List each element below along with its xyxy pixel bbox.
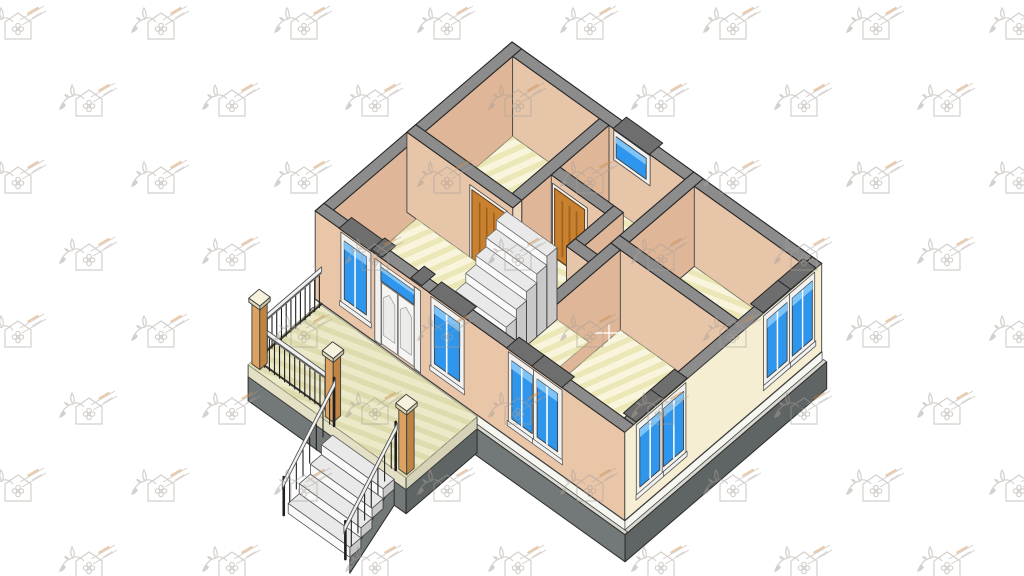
- watermark-leaf-icon: [64, 94, 69, 98]
- watermark-leaf-icon: [631, 103, 638, 110]
- watermark-leaf-icon: [846, 334, 853, 341]
- watermark-text-mark: [98, 238, 110, 246]
- watermark-flower-icon: [155, 335, 159, 339]
- watermark-flower-center: [660, 567, 662, 569]
- watermark-leaf-icon: [131, 180, 138, 187]
- watermark-text-mark: [98, 392, 110, 400]
- house-3d-render: [0, 0, 1024, 576]
- watermark-leaf-icon: [64, 556, 69, 560]
- watermark-flower-icon: [83, 566, 87, 570]
- watermark-flower-center: [17, 336, 19, 338]
- watermark-leaf-icon: [560, 26, 567, 33]
- watermark-flower-icon: [155, 181, 159, 185]
- watermark-leaf-icon: [59, 257, 66, 264]
- watermark-flower-center: [1018, 182, 1020, 184]
- watermark-flower-center: [946, 413, 948, 415]
- watermark-flower-icon: [83, 258, 87, 262]
- watermark-flower-icon: [727, 489, 731, 493]
- watermark-flower-icon: [1013, 335, 1017, 339]
- floor-stripe: [426, 479, 989, 576]
- watermark-house-icon: [934, 552, 960, 576]
- watermark-leaf-icon: [989, 488, 996, 495]
- watermark-leaf-icon: [207, 248, 212, 252]
- watermark-text-mark: [32, 320, 42, 327]
- screenshot-canvas: [0, 0, 1024, 576]
- post-face: [407, 406, 414, 474]
- watermark-flower-center: [946, 259, 948, 261]
- watermark-leaf-icon: [989, 334, 996, 341]
- watermark-flower-center: [875, 182, 877, 184]
- watermark-text-mark: [32, 12, 42, 19]
- floor-stripe: [0, 525, 561, 576]
- watermark-flower-center: [303, 336, 305, 338]
- watermark-text-mark: [890, 474, 900, 481]
- watermark-logo: [774, 83, 832, 116]
- watermark-leaf-icon: [917, 411, 924, 418]
- watermark-text-mark: [384, 546, 396, 554]
- watermark-text-mark: [103, 243, 113, 250]
- watermark-logo: [846, 314, 904, 347]
- watermark-text-mark: [246, 243, 256, 250]
- watermark-flower-center: [374, 567, 376, 569]
- watermark-flower-icon: [941, 258, 945, 262]
- watermark-logo: [202, 83, 260, 116]
- watermark-text-mark: [103, 397, 113, 404]
- watermark-flower-icon: [226, 566, 230, 570]
- watermark-flower-icon: [155, 489, 159, 493]
- watermark-text-mark: [527, 546, 539, 554]
- watermark-logo: [131, 314, 189, 347]
- watermark-leaf-icon: [917, 103, 924, 110]
- watermark-flower-center: [88, 567, 90, 569]
- watermark-flower-icon: [798, 104, 802, 108]
- post-face: [252, 302, 260, 370]
- watermark-flower-center: [732, 182, 734, 184]
- watermark-leaf-icon: [59, 411, 66, 418]
- watermark-leaf-icon: [994, 171, 999, 175]
- watermark-text-mark: [742, 469, 754, 477]
- watermark-logo: [846, 6, 904, 39]
- watermark-logo: [917, 83, 975, 116]
- watermark-house-icon: [76, 552, 102, 576]
- watermark-flower-icon: [155, 27, 159, 31]
- watermark-leaf-icon: [846, 26, 853, 33]
- watermark-text-mark: [961, 551, 971, 558]
- watermark-text-mark: [675, 89, 685, 96]
- watermark-flower-icon: [1013, 27, 1017, 31]
- watermark-text-mark: [170, 469, 182, 477]
- watermark-leaf-icon: [922, 94, 927, 98]
- watermark-flower-center: [231, 259, 233, 261]
- watermark-text-mark: [813, 84, 825, 92]
- watermark-leaf-icon: [994, 17, 999, 21]
- floor-stripe: [146, 0, 673, 92]
- watermark-flower-icon: [12, 27, 16, 31]
- watermark-logo: [59, 391, 117, 424]
- watermark-logo: [989, 160, 1024, 193]
- watermark-text-mark: [318, 12, 328, 19]
- watermark-flower-icon: [226, 258, 230, 262]
- watermark-flower-center: [160, 182, 162, 184]
- watermark-leaf-icon: [846, 180, 853, 187]
- watermark-leaf-icon: [851, 479, 856, 483]
- watermark-text-mark: [818, 243, 828, 250]
- window-mullion: [649, 420, 651, 479]
- watermark-text-mark: [956, 238, 968, 246]
- watermark-leaf-icon: [708, 17, 713, 21]
- door-plank-line: [562, 201, 564, 258]
- watermark-leaf-icon: [493, 556, 498, 560]
- watermark-flower-center: [660, 105, 662, 107]
- watermark-text-mark: [670, 84, 682, 92]
- watermark-flower-center: [517, 105, 519, 107]
- watermark-flower-center: [231, 105, 233, 107]
- watermark-text-mark: [318, 166, 328, 173]
- door-pilaster: [375, 258, 381, 345]
- watermark-leaf-icon: [703, 26, 710, 33]
- watermark-logo: [917, 391, 975, 424]
- watermark-flower-icon: [226, 412, 230, 416]
- watermark-text-mark: [961, 397, 971, 404]
- window-mullion: [446, 314, 448, 373]
- watermark-leaf-icon: [422, 17, 427, 21]
- watermark-logo: [0, 314, 46, 347]
- floor-stripe: [0, 492, 574, 576]
- watermark-flower-icon: [798, 412, 802, 416]
- watermark-flower-center: [303, 28, 305, 30]
- watermark-leaf-icon: [846, 488, 853, 495]
- watermark-text-mark: [599, 7, 611, 15]
- watermark-logo: [202, 237, 260, 270]
- watermark-text-mark: [818, 397, 828, 404]
- watermark-flower-center: [875, 490, 877, 492]
- watermark-leaf-icon: [136, 171, 141, 175]
- watermark-text-mark: [246, 551, 256, 558]
- watermark-text-mark: [241, 84, 253, 92]
- watermark-text-mark: [32, 474, 42, 481]
- window-mullion: [777, 311, 779, 370]
- watermark-flower-center: [732, 28, 734, 30]
- watermark-flower-center: [303, 490, 305, 492]
- watermark-text-mark: [956, 392, 968, 400]
- watermark-leaf-icon: [345, 103, 352, 110]
- watermark-flower-icon: [369, 566, 373, 570]
- watermark-leaf-icon: [417, 26, 424, 33]
- watermark-logo: [274, 6, 332, 39]
- watermark-leaf-icon: [279, 17, 284, 21]
- watermark-flower-center: [303, 182, 305, 184]
- porch-post-1: [249, 289, 270, 369]
- window-mullion: [802, 289, 803, 348]
- watermark-text-mark: [313, 7, 325, 15]
- watermark-house-icon: [219, 552, 245, 576]
- watermark-text-mark: [890, 320, 900, 327]
- watermark-flower-center: [231, 567, 233, 569]
- watermark-leaf-icon: [202, 103, 209, 110]
- watermark-leaf-icon: [131, 26, 138, 33]
- stair-side: [527, 283, 537, 346]
- watermark-leaf-icon: [636, 556, 641, 560]
- watermark-flower-center: [88, 259, 90, 261]
- watermark-leaf-icon: [708, 171, 713, 175]
- watermark-text-mark: [103, 551, 113, 558]
- watermark-leaf-icon: [636, 94, 641, 98]
- watermark-text-mark: [461, 12, 471, 19]
- watermark-text-mark: [389, 89, 399, 96]
- watermark-flower-icon: [83, 104, 87, 108]
- watermark-flower-center: [17, 182, 19, 184]
- watermark-flower-center: [517, 259, 519, 261]
- watermark-logo: [202, 545, 260, 576]
- watermark-flower-center: [589, 490, 591, 492]
- watermark-flower-center: [589, 336, 591, 338]
- watermark-leaf-icon: [279, 171, 284, 175]
- watermark-logo: [989, 314, 1024, 347]
- watermark-leaf-icon: [207, 402, 212, 406]
- watermark-text-mark: [98, 84, 110, 92]
- watermark-flower-center: [88, 413, 90, 415]
- watermark-text-mark: [961, 243, 971, 250]
- watermark-logo: [703, 6, 761, 39]
- watermark-flower-center: [803, 259, 805, 261]
- watermark-flower-icon: [83, 412, 87, 416]
- watermark-flower-center: [446, 490, 448, 492]
- stair-side: [547, 248, 557, 329]
- watermark-flower-center: [160, 28, 162, 30]
- watermark-text-mark: [313, 161, 325, 169]
- watermark-flower-center: [374, 413, 376, 415]
- watermark-leaf-icon: [59, 103, 66, 110]
- watermark-flower-center: [446, 28, 448, 30]
- watermark-logo: [631, 83, 689, 116]
- watermark-leaf-icon: [917, 257, 924, 264]
- door-pilaster: [414, 287, 420, 374]
- watermark-flower-center: [517, 567, 519, 569]
- watermark-flower-icon: [441, 489, 445, 493]
- watermark-logo: [274, 160, 332, 193]
- watermark-text-mark: [742, 7, 754, 15]
- watermark-flower-center: [1018, 336, 1020, 338]
- watermark-flower-center: [803, 413, 805, 415]
- watermark-leaf-icon: [202, 411, 209, 418]
- watermark-leaf-icon: [851, 325, 856, 329]
- window-mullion: [354, 249, 356, 308]
- watermark-leaf-icon: [989, 180, 996, 187]
- watermark-flower-center: [160, 490, 162, 492]
- watermark-flower-icon: [870, 489, 874, 493]
- watermark-flower-center: [803, 567, 805, 569]
- watermark-flower-center: [231, 413, 233, 415]
- watermark-leaf-icon: [274, 488, 281, 495]
- watermark-flower-center: [374, 259, 376, 261]
- watermark-logo: [0, 160, 46, 193]
- watermark-text-mark: [885, 315, 897, 323]
- watermark-logo: [345, 83, 403, 116]
- watermark-flower-center: [946, 105, 948, 107]
- watermark-flower-icon: [798, 566, 802, 570]
- watermark-logo: [488, 545, 546, 576]
- watermark-flower-icon: [1013, 181, 1017, 185]
- watermark-text-mark: [890, 166, 900, 173]
- door-plank-line: [479, 202, 481, 259]
- watermark-flower-icon: [12, 489, 16, 493]
- watermark-leaf-icon: [989, 26, 996, 33]
- watermark-logo: [417, 6, 475, 39]
- watermark-logo: [131, 6, 189, 39]
- watermark-text-mark: [747, 474, 757, 481]
- watermark-text-mark: [956, 84, 968, 92]
- watermark-text-mark: [532, 551, 542, 558]
- watermark-flower-center: [374, 105, 376, 107]
- watermark-logo: [131, 468, 189, 501]
- watermark-text-mark: [675, 551, 685, 558]
- watermark-flower-icon: [226, 104, 230, 108]
- watermark-flower-icon: [512, 566, 516, 570]
- floor-stripe: [446, 523, 1009, 576]
- watermark-flower-icon: [941, 412, 945, 416]
- watermark-leaf-icon: [59, 565, 66, 572]
- post-face: [399, 407, 407, 475]
- watermark-flower-icon: [870, 27, 874, 31]
- watermark-flower-center: [589, 28, 591, 30]
- watermark-flower-center: [875, 28, 877, 30]
- watermark-leaf-icon: [64, 248, 69, 252]
- watermark-text-mark: [389, 551, 399, 558]
- watermark-text-mark: [175, 12, 185, 19]
- watermark-text-mark: [32, 166, 42, 173]
- watermark-leaf-icon: [202, 565, 209, 572]
- watermark-text-mark: [246, 89, 256, 96]
- watermark-flower-icon: [584, 27, 588, 31]
- watermark-flower-center: [946, 567, 948, 569]
- watermark-text-mark: [170, 315, 182, 323]
- watermark-flower-icon: [941, 566, 945, 570]
- watermark-text-mark: [742, 161, 754, 169]
- watermark-flower-center: [875, 336, 877, 338]
- watermark-leaf-icon: [774, 103, 781, 110]
- watermark-leaf-icon: [922, 556, 927, 560]
- watermark-flower-center: [88, 105, 90, 107]
- watermark-flower-center: [517, 413, 519, 415]
- watermark-flower-center: [803, 105, 805, 107]
- watermark-logo: [774, 545, 832, 576]
- watermark-flower-center: [732, 336, 734, 338]
- watermark-text-mark: [813, 546, 825, 554]
- watermark-leaf-icon: [350, 94, 355, 98]
- watermark-text-mark: [241, 238, 253, 246]
- watermark-leaf-icon: [779, 556, 784, 560]
- watermark-flower-icon: [12, 181, 16, 185]
- watermark-leaf-icon: [994, 325, 999, 329]
- watermark-house-icon: [505, 552, 531, 576]
- watermark-leaf-icon: [202, 257, 209, 264]
- watermark-flower-icon: [941, 104, 945, 108]
- watermark-logo: [989, 468, 1024, 501]
- watermark-logo: [560, 6, 618, 39]
- watermark-flower-center: [589, 182, 591, 184]
- watermark-logo: [0, 6, 46, 39]
- watermark-flower-icon: [655, 104, 659, 108]
- watermark-text-mark: [813, 238, 825, 246]
- watermark-leaf-icon: [274, 26, 281, 33]
- watermark-logo: [59, 545, 117, 576]
- watermark-leaf-icon: [207, 94, 212, 98]
- watermark-text-mark: [170, 161, 182, 169]
- floor-stripe: [0, 514, 566, 576]
- watermark-text-mark: [890, 12, 900, 19]
- watermark-flower-icon: [870, 335, 874, 339]
- watermark-logo: [131, 160, 189, 193]
- watermark-text-mark: [175, 166, 185, 173]
- watermark-leaf-icon: [917, 565, 924, 572]
- watermark-leaf-icon: [131, 334, 138, 341]
- watermark-logo: [846, 468, 904, 501]
- watermark-flower-center: [732, 490, 734, 492]
- watermark-text-mark: [175, 320, 185, 327]
- watermark-leaf-icon: [851, 17, 856, 21]
- post-face: [260, 301, 267, 369]
- floor-stripe: [141, 0, 668, 81]
- watermark-flower-icon: [727, 181, 731, 185]
- watermark-leaf-icon: [922, 248, 927, 252]
- watermark-leaf-icon: [774, 565, 781, 572]
- watermark-flower-icon: [369, 104, 373, 108]
- watermark-house-icon: [648, 552, 674, 576]
- watermark-flower-icon: [441, 27, 445, 31]
- door-panel: [400, 307, 411, 355]
- watermark-leaf-icon: [565, 17, 570, 21]
- watermark-logo: [59, 83, 117, 116]
- window-mullion: [521, 368, 523, 427]
- watermark-text-mark: [961, 89, 971, 96]
- watermark-leaf-icon: [136, 325, 141, 329]
- watermark-logo: [846, 160, 904, 193]
- watermark-text-mark: [175, 474, 185, 481]
- watermark-logo: [917, 545, 975, 576]
- floor-stripe: [151, 0, 678, 103]
- watermark-leaf-icon: [207, 556, 212, 560]
- door-panel: [384, 295, 395, 343]
- watermark-text-mark: [604, 12, 614, 19]
- watermark-house-icon: [791, 552, 817, 576]
- watermark-flower-icon: [1013, 489, 1017, 493]
- watermark-flower-center: [160, 336, 162, 338]
- watermark-text-mark: [103, 89, 113, 96]
- watermark-text-mark: [670, 546, 682, 554]
- stair-side: [537, 265, 547, 337]
- watermark-leaf-icon: [488, 565, 495, 572]
- watermark-leaf-icon: [136, 479, 141, 483]
- watermark-leaf-icon: [779, 94, 784, 98]
- watermark-text-mark: [27, 161, 39, 169]
- watermark-text-mark: [27, 469, 39, 477]
- watermark-text-mark: [885, 469, 897, 477]
- watermark-house-icon: [362, 552, 388, 576]
- watermark-flower-icon: [655, 566, 659, 570]
- watermark-leaf-icon: [851, 171, 856, 175]
- watermark-text-mark: [747, 166, 757, 173]
- watermark-text-mark: [818, 551, 828, 558]
- watermark-text-mark: [98, 546, 110, 554]
- watermark-flower-icon: [298, 27, 302, 31]
- watermark-text-mark: [885, 7, 897, 15]
- watermark-logo: [917, 237, 975, 270]
- watermark-flower-center: [446, 336, 448, 338]
- watermark-flower-icon: [870, 181, 874, 185]
- watermark-flower-icon: [727, 27, 731, 31]
- window-mullion: [546, 386, 548, 445]
- watermark-leaf-icon: [136, 17, 141, 21]
